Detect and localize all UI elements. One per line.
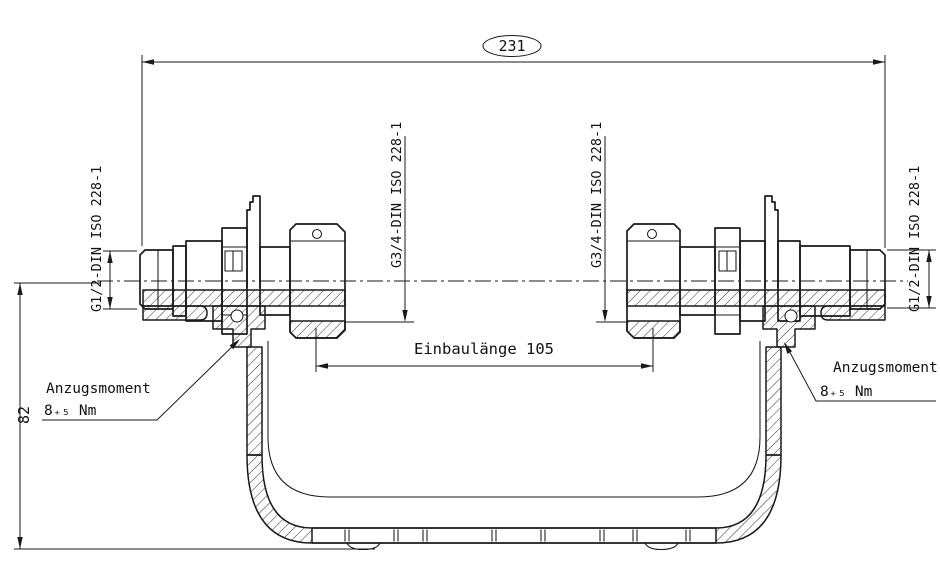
bracket-right-bend bbox=[716, 455, 781, 543]
right-mounting-plate-section bbox=[627, 290, 885, 306]
overall-length-value: 231 bbox=[498, 37, 525, 55]
left-oring bbox=[231, 310, 243, 322]
technical-drawing-canvas: 231 82 G1/2-DIN ISO 228-1 G3/4-DIN ISO 2… bbox=[0, 0, 940, 580]
right-fitting bbox=[627, 196, 885, 347]
left-plate-end-block bbox=[143, 306, 207, 320]
right-nut-weep-hole bbox=[648, 230, 657, 239]
torque-right-label: Anzugsmoment bbox=[833, 360, 938, 376]
right-plate-end-block bbox=[821, 306, 885, 320]
technical-drawing-page: 231 82 G1/2-DIN ISO 228-1 G3/4-DIN ISO 2… bbox=[0, 0, 940, 580]
installation-length-value: Einbaulänge 105 bbox=[414, 340, 554, 358]
right-oring bbox=[785, 310, 797, 322]
dimension-installation-length: Einbaulänge 105 bbox=[316, 328, 653, 372]
thread-callout-left-outer: G1/2-DIN ISO 228-1 bbox=[89, 166, 137, 312]
torque-note-right: Anzugsmoment 8₊₅ Nm bbox=[784, 342, 938, 401]
left-nut-section bbox=[290, 321, 345, 338]
torque-left-value: 8₊₅ Nm bbox=[44, 403, 97, 419]
thread-label-right-inner: G3/4-DIN ISO 228-1 bbox=[589, 122, 605, 268]
arrow-left bbox=[142, 59, 154, 64]
rail-slots bbox=[345, 530, 690, 542]
mounting-bracket bbox=[247, 341, 781, 550]
thread-label-right-outer: G1/2-DIN ISO 228-1 bbox=[907, 166, 923, 312]
bracket-left-bend bbox=[247, 455, 312, 543]
left-nut-weep-hole bbox=[313, 230, 322, 239]
thread-callout-left-inner: G3/4-DIN ISO 228-1 bbox=[345, 122, 414, 322]
thread-callout-right-inner: G3/4-DIN ISO 228-1 bbox=[589, 122, 627, 322]
bracket-right-inner-wall bbox=[698, 341, 760, 497]
left-mounting-plate-section bbox=[143, 290, 345, 306]
thread-callout-right-outer: G1/2-DIN ISO 228-1 bbox=[887, 166, 936, 312]
torque-right-value: 8₊₅ Nm bbox=[820, 384, 873, 400]
torque-note-left: Anzugsmoment 8₊₅ Nm bbox=[42, 339, 240, 420]
bracket-left-leg bbox=[247, 347, 262, 455]
thread-label-left-outer: G1/2-DIN ISO 228-1 bbox=[89, 166, 105, 312]
left-fitting bbox=[140, 196, 345, 347]
right-flange-plate bbox=[765, 196, 778, 288]
arrow-right bbox=[873, 59, 885, 64]
bracket-left-inner-wall bbox=[268, 341, 330, 497]
left-flange-plate bbox=[247, 196, 260, 288]
bracket-right-foot bbox=[645, 543, 678, 550]
torque-left-label: Anzugsmoment bbox=[46, 381, 151, 397]
thread-label-left-inner: G3/4-DIN ISO 228-1 bbox=[389, 122, 405, 268]
bracket-right-leg bbox=[766, 347, 781, 455]
height-value: 82 bbox=[15, 406, 33, 424]
dimension-overall-length: 231 bbox=[142, 36, 885, 249]
